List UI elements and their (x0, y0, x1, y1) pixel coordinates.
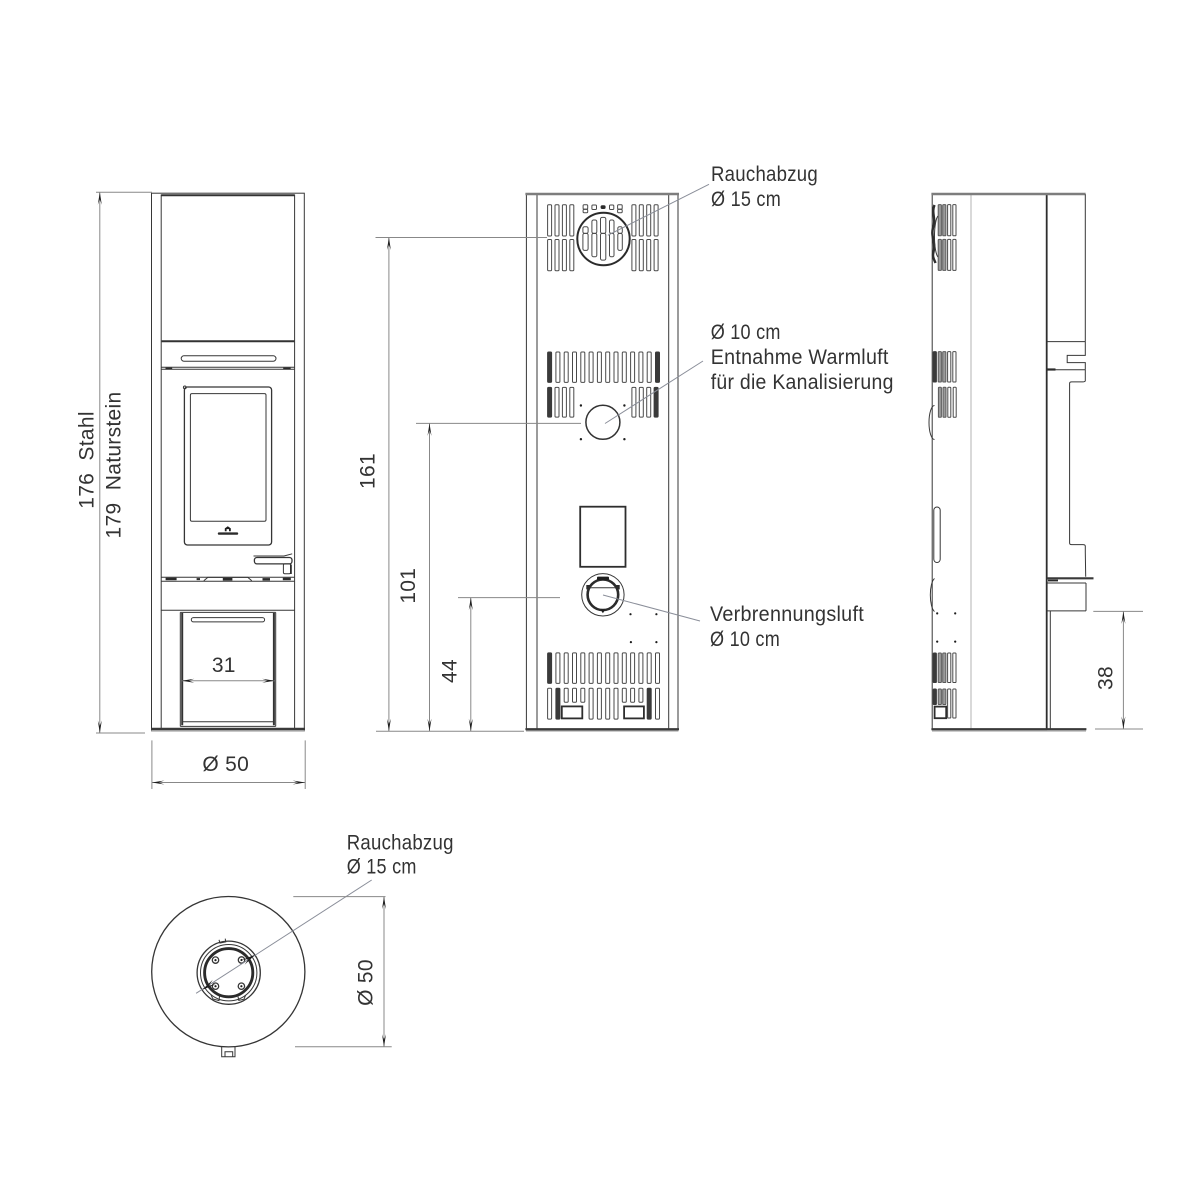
svg-text:Ø 50: Ø 50 (355, 959, 378, 1006)
svg-text:Ø 50: Ø 50 (202, 753, 249, 776)
svg-text:176 Stahl: 176 Stahl (76, 411, 99, 509)
svg-text:Rauchabzug: Rauchabzug (711, 163, 818, 186)
svg-text:Ø 10 cm: Ø 10 cm (710, 628, 780, 651)
svg-text:Ø 15 cm: Ø 15 cm (347, 855, 417, 878)
svg-text:Entnahme Warmluft: Entnahme Warmluft (711, 346, 889, 369)
svg-text:44: 44 (438, 659, 461, 683)
svg-text:101: 101 (397, 568, 420, 604)
svg-text:31: 31 (212, 654, 236, 677)
svg-text:179 Naturstein: 179 Naturstein (103, 392, 126, 539)
svg-text:für die Kanalisierung: für die Kanalisierung (711, 371, 894, 394)
svg-text:Ø 10 cm: Ø 10 cm (711, 321, 781, 344)
svg-text:161: 161 (357, 453, 380, 489)
svg-text:Ø 15 cm: Ø 15 cm (711, 188, 781, 211)
svg-text:Verbrennungsluft: Verbrennungsluft (710, 603, 864, 626)
svg-text:38: 38 (1094, 666, 1117, 690)
svg-text:Rauchabzug: Rauchabzug (347, 831, 454, 854)
